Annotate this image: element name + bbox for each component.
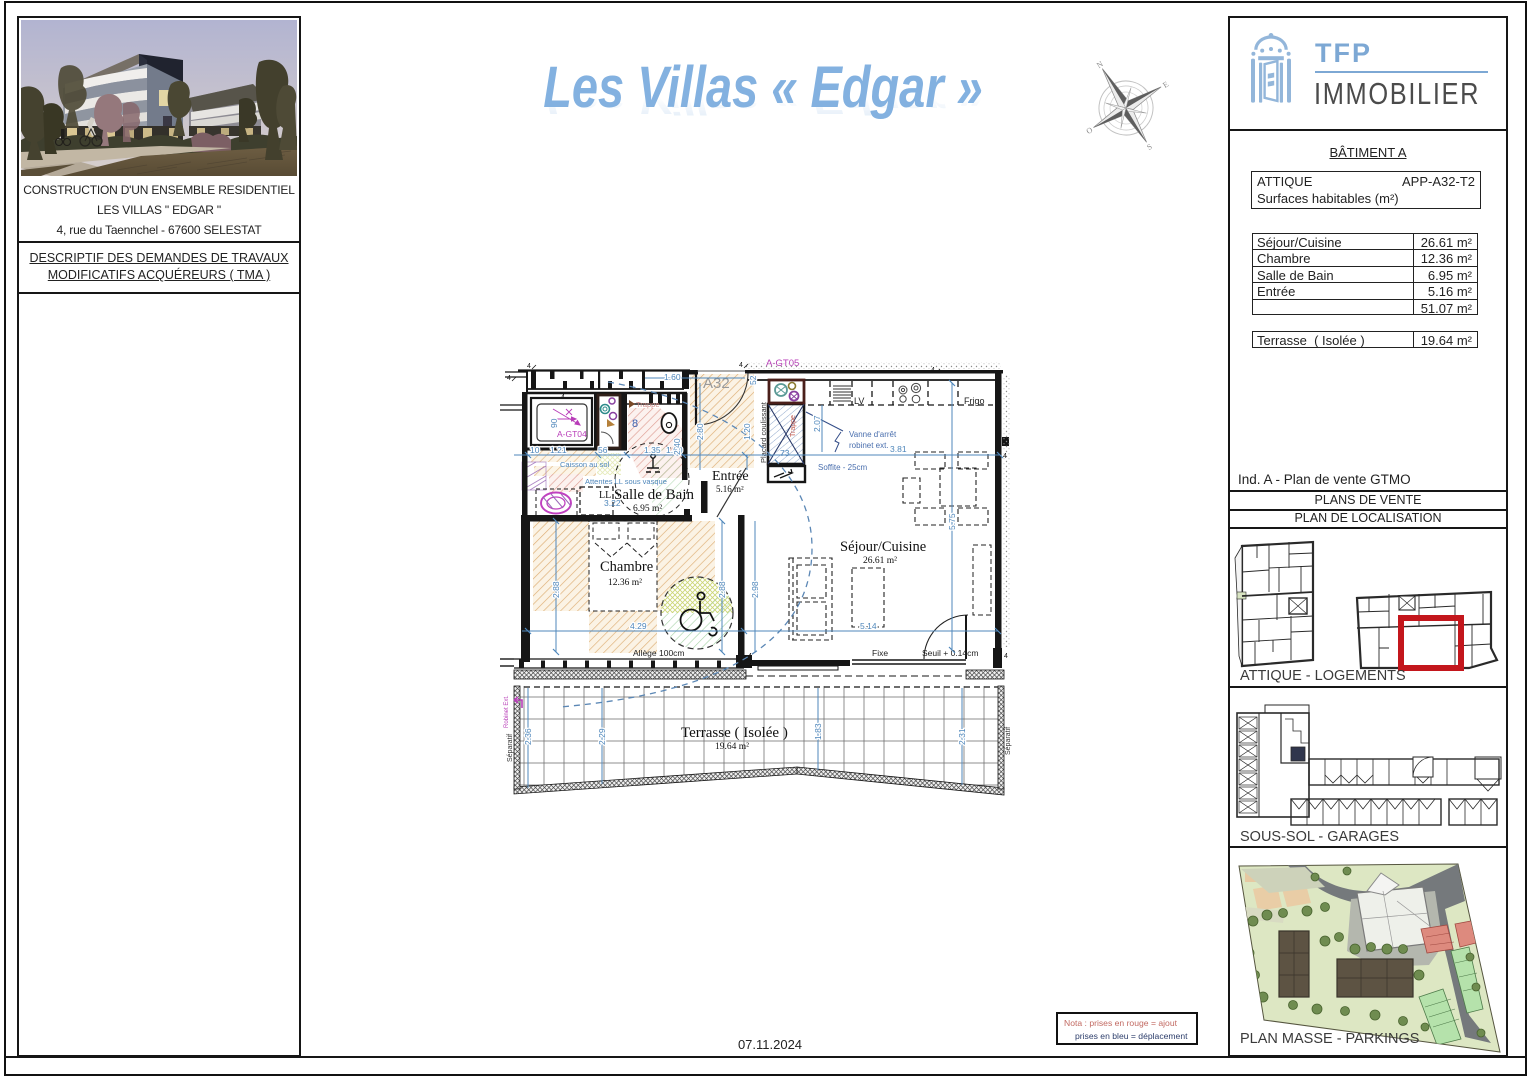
svg-text:3.22: 3.22: [604, 498, 621, 508]
svg-text:2.88: 2.88: [717, 581, 727, 598]
svg-text:4: 4: [527, 363, 531, 370]
svg-text:Terrasse ( Isolée ): Terrasse ( Isolée ): [681, 725, 788, 741]
svg-text:10: 10: [530, 445, 540, 455]
svg-text:robinet ext.: robinet ext.: [849, 441, 889, 450]
svg-text:Entrée: Entrée: [712, 469, 749, 484]
svg-text:4: 4: [931, 367, 935, 374]
svg-text:5.16 m²: 5.16 m²: [716, 484, 744, 494]
svg-text:4.29: 4.29: [630, 621, 647, 631]
svg-text:1.35: 1.35: [644, 445, 661, 455]
svg-text:19.64 m²: 19.64 m²: [715, 742, 749, 752]
svg-text:2.36: 2.36: [523, 728, 533, 745]
svg-text:4: 4: [561, 394, 565, 401]
svg-text:56: 56: [598, 445, 608, 455]
svg-text:2.29: 2.29: [597, 728, 607, 745]
svg-text:2.88: 2.88: [551, 581, 561, 598]
svg-text:Seuil + 0.14cm: Seuil + 0.14cm: [922, 648, 978, 658]
svg-text:Salle de Bain: Salle de Bain: [614, 487, 694, 503]
svg-text:2.98: 2.98: [750, 581, 760, 598]
svg-text:PLAN MASSE - PARKINGS: PLAN MASSE - PARKINGS: [1240, 1031, 1419, 1047]
svg-text:4: 4: [507, 375, 511, 382]
svg-text:52: 52: [748, 375, 758, 385]
svg-text:Séjour/Cuisine: Séjour/Cuisine: [840, 539, 926, 555]
svg-text:SOUS-SOL - GARAGES: SOUS-SOL - GARAGES: [1240, 829, 1399, 845]
svg-text:Trappe: Trappe: [790, 415, 797, 437]
svg-text:1.83: 1.83: [813, 723, 823, 740]
svg-text:2.40: 2.40: [672, 438, 682, 455]
svg-text:Allège 100cm: Allège 100cm: [633, 648, 685, 658]
svg-text:Frigo: Frigo: [964, 396, 985, 406]
svg-text:Séparatif: Séparatif: [507, 734, 514, 762]
svg-text:Soffite - 25cm: Soffite - 25cm: [818, 463, 868, 472]
svg-text:Vanne d'arrêt: Vanne d'arrêt: [849, 430, 897, 439]
svg-text:LV: LV: [854, 396, 864, 406]
svg-text:12.36 m²: 12.36 m²: [608, 578, 642, 588]
svg-text:Attentes LL sous vasque: Attentes LL sous vasque: [585, 477, 667, 486]
svg-text:26.61 m²: 26.61 m²: [863, 556, 897, 566]
svg-text:1.20: 1.20: [742, 423, 752, 440]
svg-text:90: 90: [549, 418, 559, 428]
svg-text:2.80: 2.80: [695, 423, 705, 440]
svg-text:4: 4: [1003, 453, 1007, 460]
svg-text:Trappe: Trappe: [636, 400, 660, 409]
svg-text:Caisson au sol: Caisson au sol: [560, 460, 610, 469]
svg-text:4: 4: [1004, 653, 1008, 660]
svg-text:2.31: 2.31: [957, 728, 967, 745]
svg-text:N: N: [1095, 59, 1105, 70]
svg-text:Placard coulissant: Placard coulissant: [759, 401, 768, 463]
svg-text:5.14: 5.14: [860, 621, 877, 631]
svg-text:E: E: [1161, 80, 1170, 90]
svg-text:A-GT04: A-GT04: [557, 429, 587, 439]
svg-text:Chambre: Chambre: [600, 559, 653, 575]
svg-text:Séparatif: Séparatif: [1005, 727, 1012, 755]
svg-text:5.75: 5.75: [947, 513, 957, 530]
svg-text:1.21: 1.21: [550, 445, 567, 455]
svg-text:S: S: [1145, 142, 1153, 152]
svg-text:8: 8: [632, 418, 638, 430]
svg-text:4: 4: [739, 362, 743, 369]
svg-text:4: 4: [748, 653, 752, 660]
svg-text:ATTIQUE - LOGEMENTS: ATTIQUE - LOGEMENTS: [1240, 668, 1406, 684]
svg-text:Robinet Ext.: Robinet Ext.: [504, 695, 510, 728]
svg-text:Fixe: Fixe: [872, 648, 888, 658]
svg-text:3.81: 3.81: [890, 444, 907, 454]
svg-text:O: O: [1085, 125, 1095, 136]
svg-text:2.07: 2.07: [812, 415, 822, 432]
svg-text:73: 73: [780, 448, 790, 458]
svg-text:6.95 m²: 6.95 m²: [633, 504, 662, 514]
svg-text:1.60: 1.60: [664, 372, 681, 382]
